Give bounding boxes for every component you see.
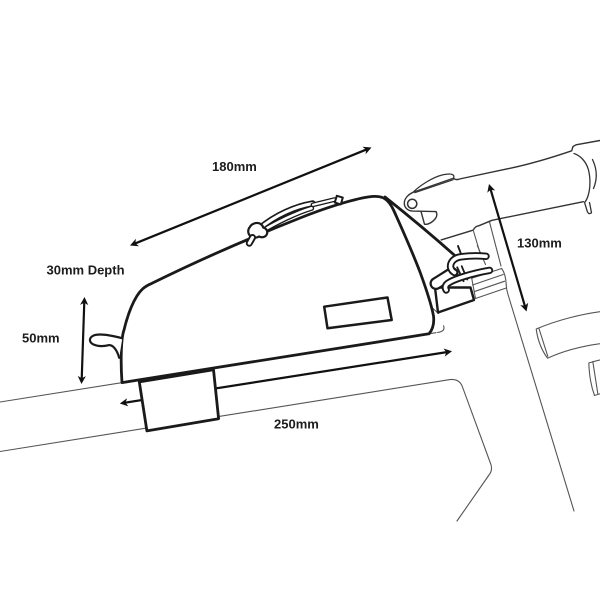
svg-text:50mm: 50mm: [22, 331, 60, 346]
svg-text:130mm: 130mm: [517, 236, 562, 251]
svg-text:30mm Depth: 30mm Depth: [47, 263, 125, 278]
svg-text:180mm: 180mm: [212, 159, 257, 174]
svg-text:250mm: 250mm: [274, 417, 319, 432]
